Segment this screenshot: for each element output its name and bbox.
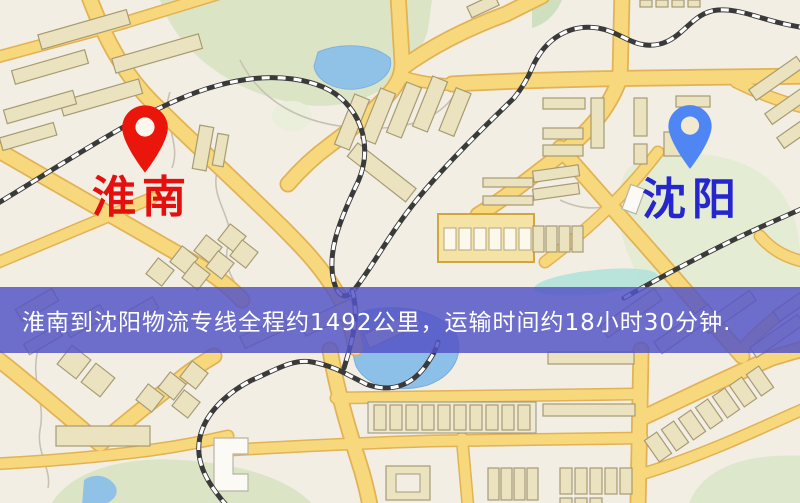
destination-pin-icon <box>667 104 713 170</box>
origin-label: 淮南 <box>92 176 192 220</box>
origin-pin-icon <box>121 104 169 174</box>
destination-label: 沈阳 <box>642 178 742 222</box>
map-canvas: 淮南到沈阳物流专线全程约1492公里，运输时间约18小时30分钟. 淮南 沈阳 <box>0 0 800 503</box>
map-background <box>0 0 800 503</box>
route-info-text: 淮南到沈阳物流专线全程约1492公里，运输时间约18小时30分钟. <box>22 303 731 337</box>
route-info-banner: 淮南到沈阳物流专线全程约1492公里，运输时间约18小时30分钟. <box>0 287 800 353</box>
